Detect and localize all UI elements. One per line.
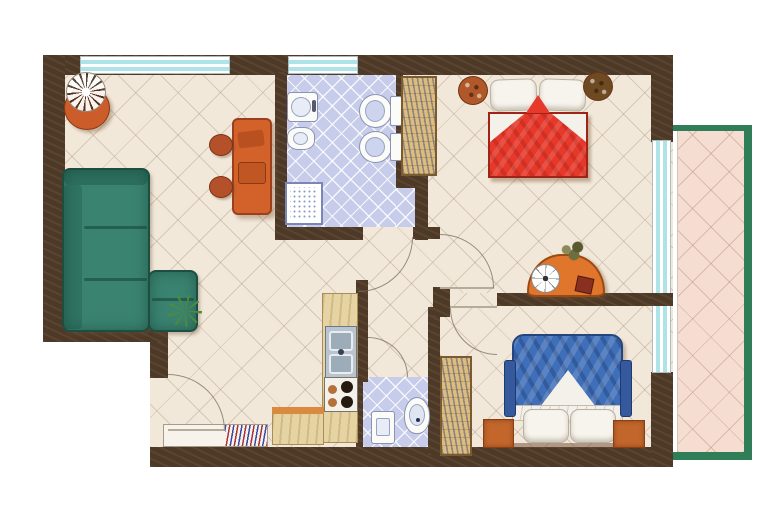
window-bathroom <box>288 56 358 74</box>
wall-step-vertical <box>150 342 168 378</box>
outside-area <box>0 342 150 509</box>
wall-wc-right <box>428 307 440 455</box>
bedroom2-doorway <box>450 293 497 306</box>
bed2-base-shadow <box>508 443 628 448</box>
bed2-side-rail-right <box>620 360 632 417</box>
window-living-room <box>80 56 230 74</box>
balcony-floor <box>677 131 744 452</box>
kitchen-faucet <box>338 349 344 355</box>
kitchen-sink-basin-1 <box>329 331 353 351</box>
table-item-1 <box>237 129 265 148</box>
small-green-plant <box>168 295 202 327</box>
radiator-symbol <box>225 425 267 446</box>
bed2-pillow-right <box>570 409 616 443</box>
wall-bottom <box>150 447 673 467</box>
wc-toilet-inner <box>409 404 425 426</box>
dresser-round-mirror <box>531 264 560 293</box>
sofa-armrest <box>64 170 148 185</box>
dining-chair-1 <box>209 134 233 156</box>
bedroom1-wardrobe <box>401 76 437 176</box>
wall-bathroom-bottom <box>275 227 363 240</box>
bed2-pillow-left <box>523 409 569 443</box>
wall-right-top <box>651 55 673 142</box>
wall-t-stub <box>433 287 450 317</box>
bed2-side-rail-left <box>504 360 516 417</box>
bedroom2-nightstand-right <box>613 420 645 448</box>
bedroom2-wardrobe <box>440 356 472 456</box>
floor-plan <box>0 0 768 509</box>
bedroom1-bedside-plant-left <box>458 76 488 105</box>
shower-tray <box>285 182 323 225</box>
bedroom1-bedside-plant-right <box>583 72 613 101</box>
toilet-bowl-1-inner <box>365 100 385 122</box>
toilet-bowl-2-inner <box>365 137 385 157</box>
dining-chair-2 <box>209 176 233 198</box>
balcony-frame-bottom <box>672 452 752 460</box>
wall-bathroom-right-lower <box>415 186 428 240</box>
sofa-cushion-line-2 <box>84 278 147 281</box>
sofa-back <box>64 185 82 329</box>
table-item-2 <box>238 162 266 184</box>
bathroom-bidet-bowl <box>293 132 308 145</box>
bathroom-faucet <box>312 100 316 112</box>
stove-burner-4 <box>328 398 337 407</box>
stove-burner-3 <box>328 385 337 394</box>
stove-burner-2 <box>341 396 353 408</box>
kitchen-sink-basin-2 <box>329 354 353 374</box>
potted-plant-rosette <box>66 72 106 112</box>
bathroom-washbasin-bowl <box>291 97 311 117</box>
balcony-frame-right <box>744 125 752 460</box>
wall-bedroom2-top-end <box>651 293 673 306</box>
bedroom2-nightstand-left <box>483 419 514 448</box>
wc-toilet-dot <box>416 418 420 422</box>
wall-right-bottom <box>651 372 673 467</box>
stove-burner-1 <box>341 381 353 393</box>
kitchen-lower-counter-edge <box>272 407 324 414</box>
kitchen-stove <box>324 377 358 412</box>
balcony-frame-top <box>672 125 752 131</box>
dresser-small-box <box>575 275 595 294</box>
bathroom-floor-extension <box>396 187 415 227</box>
wc-washbasin-bowl <box>376 418 390 436</box>
sofa-cushion-line-1 <box>84 226 147 229</box>
balcony-glass-doors <box>652 140 671 373</box>
